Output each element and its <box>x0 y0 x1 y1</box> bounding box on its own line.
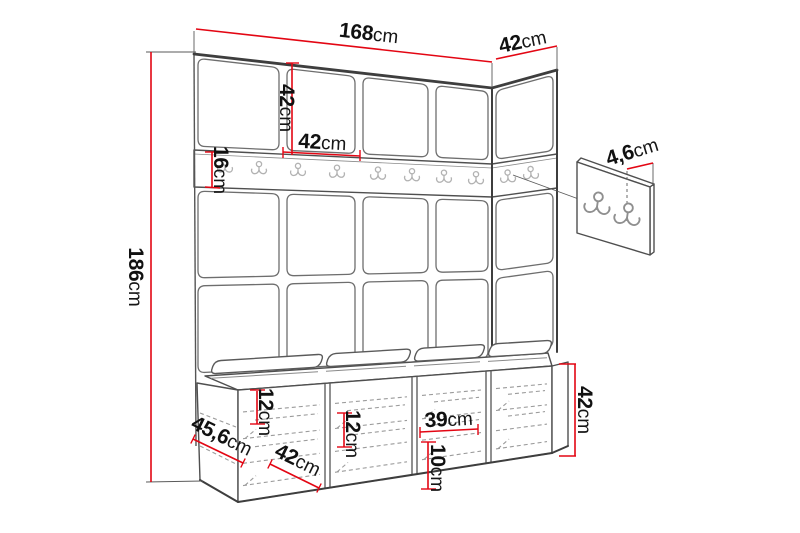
diagram-canvas: 168cm 42cm 42cm 42cm 16cm 186cm <box>0 0 800 533</box>
svg-text:42cm: 42cm <box>497 25 549 57</box>
svg-text:186cm: 186cm <box>124 247 147 306</box>
svg-text:16cm: 16cm <box>209 146 232 194</box>
dimension-bench-opening-height-left: 12cm <box>250 388 277 436</box>
svg-text:42cm: 42cm <box>573 386 596 434</box>
svg-text:12cm: 12cm <box>254 388 277 436</box>
upholstered-panel <box>496 77 553 159</box>
storage-bench <box>197 341 568 502</box>
svg-text:39cm: 39cm <box>424 407 473 432</box>
hook-panel-front-face <box>577 162 650 255</box>
upholstered-panel <box>198 59 279 150</box>
upholstered-panel <box>363 197 428 274</box>
upholstered-panel <box>436 86 488 159</box>
dimension-depth-top: 42cm <box>496 25 557 70</box>
upholstered-panel <box>436 199 488 272</box>
upholstered-panel <box>363 78 428 157</box>
svg-text:10cm: 10cm <box>426 444 449 492</box>
svg-text:4,6cm: 4,6cm <box>603 133 661 171</box>
unit-left-edge <box>194 54 196 446</box>
dimension-height-total: 186cm <box>124 52 203 482</box>
svg-text:168cm: 168cm <box>338 19 400 48</box>
svg-text:12cm: 12cm <box>341 410 364 458</box>
dimension-rail-height: 16cm <box>205 146 232 194</box>
upholstered-panel-grid <box>198 59 553 372</box>
upholstered-panel <box>198 191 279 277</box>
svg-text:42cm: 42cm <box>275 84 298 132</box>
furniture-dimension-diagram: 168cm 42cm 42cm 42cm 16cm 186cm <box>0 0 800 533</box>
seat-cushion <box>489 341 552 357</box>
svg-text:42cm: 42cm <box>298 130 347 155</box>
upholstered-panel <box>287 194 355 275</box>
hook-rail-side <box>492 154 557 197</box>
bench-right-face <box>552 362 568 453</box>
wall-hook-panel <box>577 158 654 255</box>
dimension-bench-opening-height-mid: 12cm <box>337 410 364 458</box>
upholstered-panel <box>496 193 553 269</box>
